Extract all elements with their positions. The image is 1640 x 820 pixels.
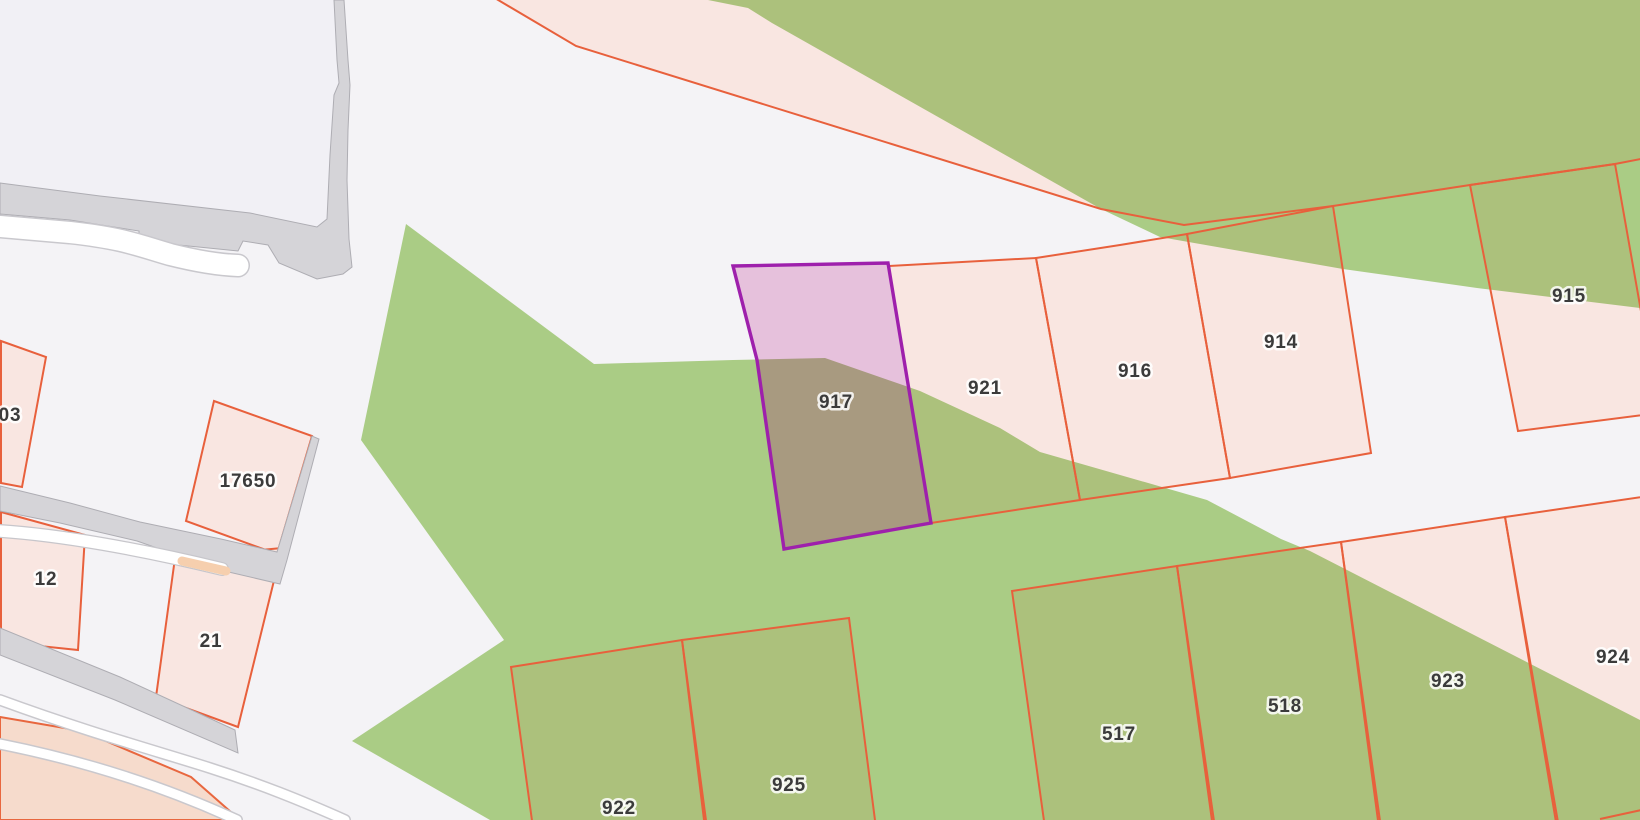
svg-text:518: 518 [1268, 696, 1302, 717]
svg-text:924: 924 [1596, 647, 1630, 668]
svg-text:915: 915 [1552, 286, 1586, 307]
svg-text:03: 03 [0, 405, 21, 426]
svg-text:921: 921 [968, 378, 1002, 399]
svg-text:916: 916 [1118, 361, 1152, 382]
svg-text:21: 21 [200, 631, 223, 652]
svg-text:517: 517 [1102, 724, 1136, 745]
svg-text:17650: 17650 [220, 471, 277, 492]
svg-text:917: 917 [819, 392, 853, 413]
svg-text:914: 914 [1264, 332, 1298, 353]
svg-text:922: 922 [602, 798, 636, 819]
svg-text:12: 12 [35, 569, 58, 590]
svg-text:923: 923 [1431, 671, 1465, 692]
svg-text:925: 925 [772, 775, 806, 796]
